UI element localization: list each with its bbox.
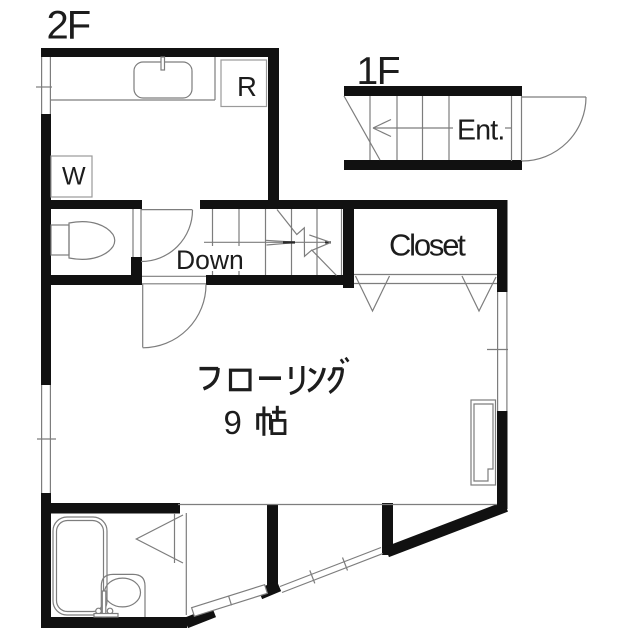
- svg-text:Ent.: Ent.: [457, 115, 505, 147]
- svg-text:9: 9: [224, 404, 242, 441]
- svg-text:2F: 2F: [47, 4, 90, 48]
- svg-text:R: R: [237, 71, 257, 102]
- svg-text:1F: 1F: [357, 50, 400, 93]
- svg-text:Closet: Closet: [389, 228, 466, 263]
- svg-text:W: W: [62, 163, 86, 191]
- svg-text:Down: Down: [176, 245, 244, 275]
